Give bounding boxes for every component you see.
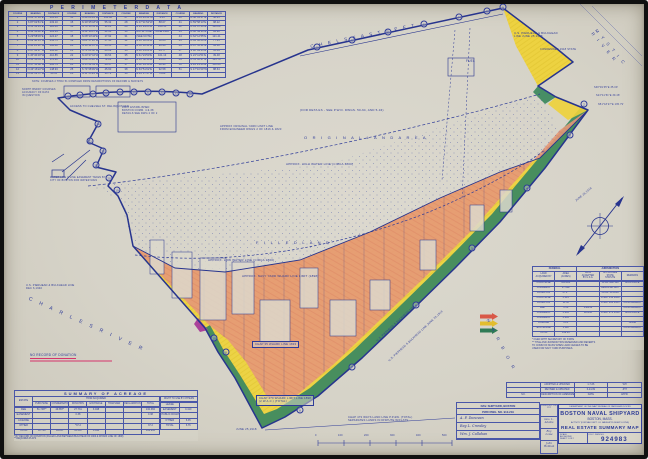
table-cell [171, 72, 189, 77]
signature-line: Ray L. Crowley [457, 423, 539, 431]
scale-bar [318, 440, 452, 446]
map-paper: P E R I M E T E R D A T A COURSEBEARINGD… [4, 4, 644, 455]
compass-rose [576, 196, 624, 256]
course-marker: 8 [297, 407, 304, 414]
acreage-col-total: TOTAL [141, 402, 159, 407]
course-marker: 3 [567, 132, 574, 139]
table-cell: TOTAL [15, 429, 33, 434]
map-label: JUNE 25,1918 [236, 428, 257, 431]
table-cell [621, 331, 643, 336]
map-label: NOTE: COURSES 2 THRU 51 COMPILED FROM DE… [32, 81, 143, 84]
revision-panel: ADOPTED & UPDATED1-7-66WHREVISED & UPDAT… [506, 382, 642, 398]
course-marker: 43 [421, 21, 428, 28]
map-label: U.S. PIERHEAD & BULKHEAD LINE DEC 6,1940 [26, 284, 74, 290]
table-cell: 26 [63, 72, 81, 77]
course-marker: 25 [65, 93, 72, 100]
course-marker: 31 [145, 89, 152, 96]
acreage-col-exchange: EXCHANGE [87, 402, 105, 407]
course-marker: 2 [581, 101, 588, 108]
course-marker: 42 [385, 29, 392, 36]
course-marker: 45 [484, 8, 491, 15]
legend-col-date: DATE ACCEPTED BY U.S.A. [577, 272, 599, 281]
table-cell: 79.82 [153, 72, 171, 77]
course-marker: 41 [349, 37, 356, 44]
table-cell [123, 429, 141, 434]
table-cell: N 11°55'24″W [81, 72, 99, 77]
right-to-use-header: RIGHT TO USE BY OTHERS [161, 397, 198, 402]
map-label: S38°49'35″E 35.09' [594, 86, 618, 89]
table-cell [189, 72, 207, 77]
acreage-right-table: LEASEEASEMENT0.410PUBLIC ROADSOTHER6.35T… [160, 402, 198, 430]
map-label: 100 [338, 434, 343, 437]
course-marker: 22 [100, 148, 107, 155]
map-label: CHAP 35 WHARF LINE 1833 [252, 341, 299, 348]
table-cell: TOTAL [533, 331, 555, 336]
course-marker: 9 [223, 349, 230, 356]
map-title: REAL ESTATE SUMMARY MAP [559, 425, 641, 430]
legend-header-table: FEDERAL JURISDICTION LAND ACQUIRED BY AR… [532, 266, 644, 281]
signature-line: A. F. Donovan [457, 415, 539, 423]
course-marker: 32 [159, 89, 166, 96]
map-label: CHAP 470 WHARF LIMIT LINE 1898 (2 W.A.C.… [256, 395, 314, 406]
shipyard-city: BOSTON, MASS. [559, 417, 641, 421]
table-cell: TOTAL [161, 424, 180, 429]
map-label: 300 [390, 434, 395, 437]
map-label: APPROX. LOW WATER LINE (CIRCA 1800) [208, 259, 274, 263]
table-cell: 33.72 [99, 72, 117, 77]
title-block: DEPARTMENT OF THE NAVY BUREAU OF YARDS A… [558, 404, 642, 444]
table-cell [599, 331, 621, 336]
map-label: S23°41'51″E 39.48' [596, 94, 620, 97]
map-label: APPROX. NAVY YARD WHARF LINE LIMIT (1898… [242, 275, 318, 279]
course-marker: 28 [103, 90, 110, 97]
department-header: DEPARTMENT OF THE NAVY BUREAU OF YARDS A… [559, 405, 641, 409]
acreage-col-transfer: TRANSFER [105, 402, 123, 407]
course-marker: 19 [114, 187, 121, 194]
table-cell: APPR. [608, 393, 642, 398]
signature-line: Geo. L. Adams [541, 417, 557, 429]
acreage-col-donation: DONATION [69, 402, 87, 407]
acreage-col-purchase: PURCHASE [33, 402, 51, 407]
course-marker: 27 [90, 91, 97, 98]
table-cell: 6.76 [179, 424, 198, 429]
table-cell: 39 [117, 72, 135, 77]
course-marker: 10 [211, 335, 218, 342]
table-cell: DATE [574, 393, 608, 398]
acreage-col-estate: ESTATE [15, 397, 33, 407]
table-cell: 169.964 [141, 429, 159, 434]
map-label: 200 [364, 434, 369, 437]
drawing-info-block: NAV. SHIPYARD, BOSTON PWD DWG. NO. 912-2… [456, 402, 540, 440]
acreage-table: FEE51.748**49.857*27.7313.048132.384EASE… [14, 407, 160, 435]
table-cell: 65.311 [69, 429, 87, 434]
legend-notes: * FILED WITH SECRETARY OF STATE ** TITLE… [532, 338, 644, 351]
street-line [300, 14, 503, 56]
course-marker: 40 [314, 44, 321, 51]
legend-col-remarks: REMARKS [621, 272, 643, 281]
map-label: F I L L E D L A N D [256, 240, 331, 245]
table-cell: 51.748 [33, 429, 51, 434]
table-cell: NO. [507, 393, 541, 398]
course-marker: 44 [456, 14, 463, 21]
scale-cell: SCALE AS SHOWN SHEET 1 OF 2 [559, 433, 588, 443]
shipyard-name: BOSTON NAVAL SHIPYARD [559, 411, 641, 417]
legend-col-statute: APPLICABLE STATE STATUTE [599, 272, 621, 281]
acreage-col-reclamation: RECLAMATION [123, 402, 141, 407]
table-cell: DESCRIPTION OF AMENDMENT OR CORRECTION [540, 393, 574, 398]
course-marker: 4 [524, 185, 531, 192]
course-marker: 26 [77, 92, 84, 99]
course-marker: 5 [469, 245, 476, 252]
table-cell: N 40°02'57″W [27, 72, 45, 77]
signature-line: John Holman [541, 441, 557, 453]
map-label: 400 [416, 434, 421, 437]
dpwo-block: DPWO NO. YE-217 Geo. L. Adams Roy Lowe J… [540, 404, 558, 454]
course-marker: 6 [413, 302, 420, 309]
map-label: CONDEMNED 1918 STATE [540, 48, 576, 51]
perimeter-data-panel: P E R I M E T E R D A T A COURSEBEARINGD… [8, 5, 226, 78]
map-label: CHAP 473 WAYS LAND LINE P.P.&W. (TOTAL) … [348, 416, 412, 423]
acreage-footnotes: * BY RECORD OF DONATION (FILLED LAND BET… [14, 436, 198, 442]
perimeter-table: COURSEBEARINGDISTANCECOURSEBEARINGDISTAN… [8, 11, 226, 78]
acreage-panel: SUMMARY OF ACREAGE ESTATE HOW ACQUIRED P… [14, 390, 198, 441]
course-marker: 33 [173, 90, 180, 97]
legend-col-acquired: LAND ACQUIRED BY [533, 272, 555, 281]
sheet-label: SHEET 1 OF 2 [560, 438, 574, 440]
course-marker: 29 [117, 89, 124, 96]
legend-col-area: AREA (ACRES) [555, 272, 577, 281]
course-marker: 20 [106, 175, 113, 182]
map-label: N51°18'27″E 135.79' [598, 103, 624, 106]
dpwo-number: DPWO NO. YE-217 [541, 405, 557, 417]
acreage-col-condemnation: CONDEMNATION [51, 402, 69, 407]
acreage-header-table: ESTATE HOW ACQUIRED PURCHASE CONDEMNATIO… [14, 396, 160, 407]
scanned-map-sheet: P E R I M E T E R D A T A COURSEBEARINGD… [0, 0, 648, 459]
course-marker: 23 [87, 138, 94, 145]
legend-table: PURCHASE109.284CHAPTER 128EXCLUSIVECONDE… [532, 281, 644, 337]
table-cell: 49.857 [51, 429, 69, 434]
course-marker: 24 [95, 121, 102, 128]
course-marker: 21 [93, 162, 100, 169]
signature-line: Roy Lowe [541, 429, 557, 441]
map-label: ACCESS TO CHELSEA ST. RELINQUISHED [70, 105, 129, 108]
map-label: APPROX. HIGH WATER LINE (CIRCA 1800) [286, 163, 353, 167]
table-cell: 199.93 [555, 331, 577, 336]
legend-panel: FEDERAL JURISDICTION LAND ACQUIRED BY AR… [532, 266, 644, 350]
map-label: O R I G I N A L L A N D A R E A [304, 135, 428, 140]
course-marker: 34 [187, 91, 194, 98]
map-label: FUEL [466, 59, 475, 63]
activity-line: ACTIVITY (FOR NAV. DEPT. C/L NAVSHIPYD M… [559, 422, 641, 424]
map-label: APPROX ORIGINAL YARD LIMIT LINE FROM ENG… [220, 125, 282, 132]
drawing-number: 924983 [589, 436, 640, 443]
table-cell: 96.31 [45, 72, 63, 77]
map-label: (FOR DETAILS - SEE P.W.D. DWGS. 50-64, A… [300, 109, 384, 113]
number-cell: F.S.C. DWG NO. 924983 [588, 433, 641, 443]
map-label: 0 [315, 434, 317, 437]
table-cell: 13 [9, 72, 27, 77]
map-label: WATER LINE & LINE EASEMENT TAKEN BY CITY… [50, 176, 106, 182]
table-cell: 3.048 [87, 429, 105, 434]
table-cell: N 64°17'47″E [135, 72, 153, 77]
table-cell [207, 72, 225, 77]
map-label: U.S. PIERHEAD & BULKHEAD LINE JUNE 25,19… [514, 32, 558, 39]
table-cell [577, 331, 599, 336]
course-marker: 30 [131, 89, 138, 96]
revision-table: ADOPTED & UPDATED1-7-66WHREVISED & UPDAT… [506, 382, 642, 398]
signature-line: Wm. J. Callahan [457, 431, 539, 439]
map-label: NO RECORD OF DONATION [30, 353, 76, 359]
course-marker: 7 [349, 364, 356, 371]
map-label: 500 [442, 434, 447, 437]
table-cell [105, 429, 123, 434]
map-label: LIMIT ESTABLISHED BOSTON COMM. 4-9-38 DE… [122, 106, 157, 115]
map-label: NORTH BNDRY COURSES ACCURACY OF DATA IN … [22, 88, 56, 97]
